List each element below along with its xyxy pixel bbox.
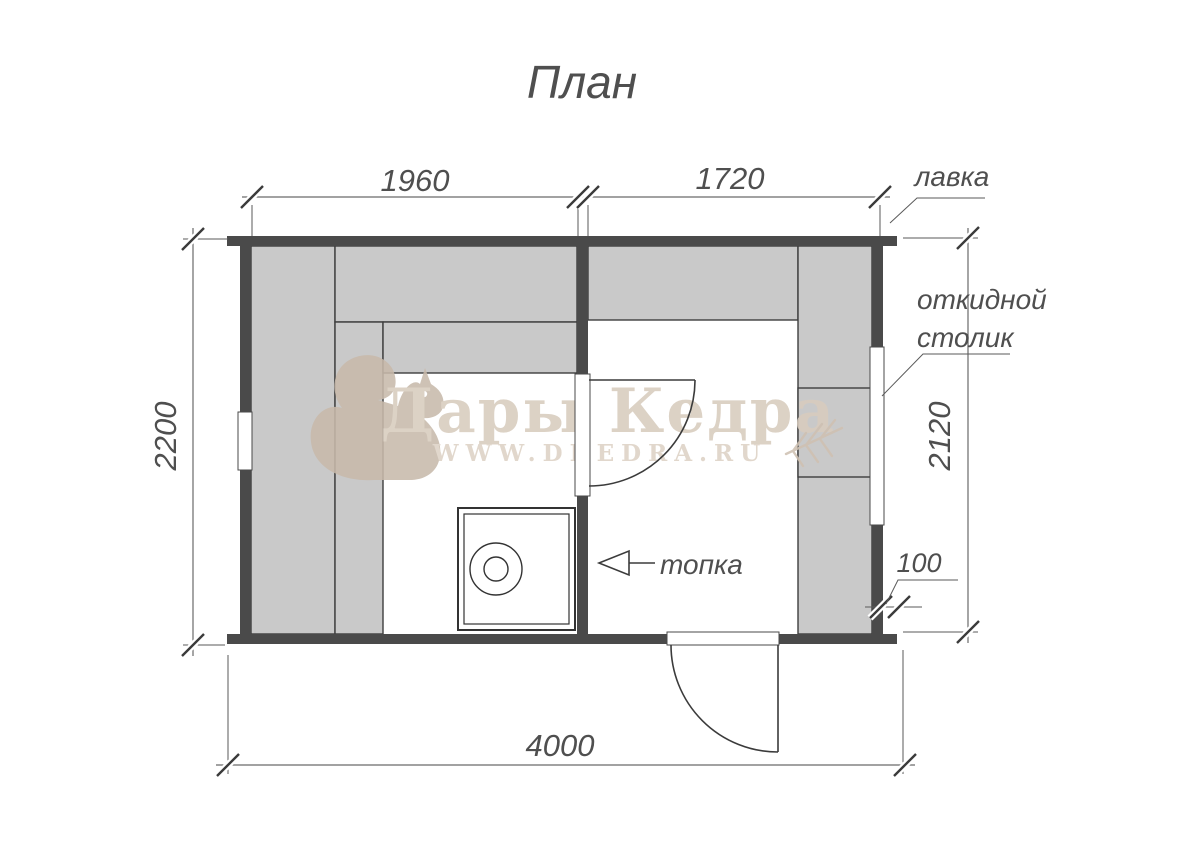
leader-lines (882, 198, 1010, 604)
folding-table-label-line2: столик (917, 322, 1015, 353)
watermark-site-text: WWW.DKEDRA.RU (432, 440, 767, 467)
bottom-wall (227, 634, 897, 644)
dimension-right-interior-depth: 2120 (922, 402, 957, 472)
entrance-door (667, 632, 779, 752)
watermark-brand-text: Дары Кедра (380, 376, 836, 447)
firebox-label: топка (660, 549, 743, 580)
dimension-wash-room-width: 1720 (696, 161, 765, 196)
page-title: План (527, 56, 637, 108)
folding-table-wall-slot (870, 347, 884, 525)
floor-plan-canvas: Дары Кедра WWW.DKEDRA.RU (0, 0, 1200, 848)
dimension-building-width: 4000 (526, 728, 595, 763)
partition-lower-segment (577, 496, 588, 634)
interior-door-opening (575, 374, 590, 496)
left-wall-vent-slot (238, 412, 252, 470)
dimension-steam-room-width: 1960 (381, 163, 450, 198)
folding-table-label-line1: откидной (917, 284, 1047, 315)
entrance-door-swing-arc (671, 645, 778, 752)
bench-leader-line (890, 198, 985, 223)
partition-upper-segment (577, 242, 588, 374)
stove-chimney-outer-circle (470, 543, 522, 595)
firebox-arrow-icon (599, 551, 655, 575)
floor-plan-drawing: Дары Кедра WWW.DKEDRA.RU (0, 0, 1200, 848)
steam-room-top-bench-upper-tier (335, 246, 577, 322)
folding-table-leader-line (882, 354, 1010, 396)
entrance-door-opening (667, 632, 779, 645)
wash-room-top-bench (588, 246, 798, 320)
bench-label: лавка (913, 161, 990, 192)
dimension-building-depth: 2200 (148, 402, 183, 472)
top-wall (227, 236, 897, 246)
stove (458, 508, 575, 630)
wall-thickness-leader-line (886, 580, 958, 604)
dimension-wall-thickness: 100 (896, 548, 941, 578)
steam-room-top-bench-lower-tier (383, 322, 577, 373)
